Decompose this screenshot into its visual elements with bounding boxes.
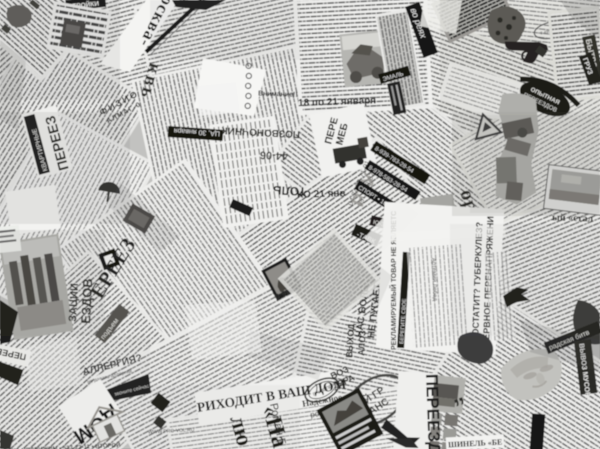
svg-text:ТОЛЬ: ТОЛЬ	[272, 183, 306, 199]
svg-text:44-06: 44-06	[260, 148, 289, 161]
svg-text:Внимание!!!: Внимание!!!	[258, 90, 300, 98]
svg-text:ПЕРЕЕЗДОВ: ПЕРЕЕЗДОВ	[422, 373, 445, 449]
